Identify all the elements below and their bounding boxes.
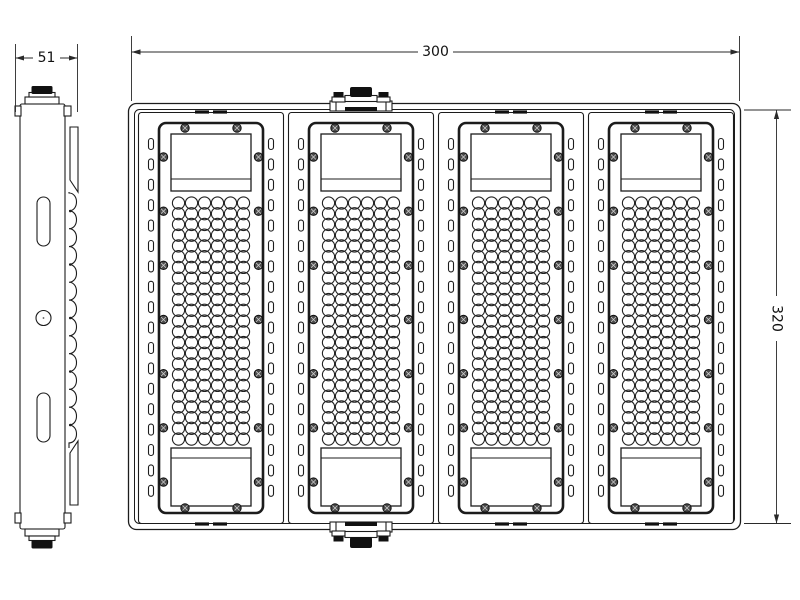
clip-mark [195,110,209,113]
top-panel [621,134,701,191]
screw [554,478,562,486]
vent-slot [269,485,274,496]
vent-slot [419,322,424,333]
screw [459,424,467,432]
side-bottom-gland-rim [29,536,55,541]
vent-slot [149,383,154,394]
vent-slot [569,200,574,211]
side-bracket-bottom [70,441,78,505]
vent-slot [419,220,424,231]
gland-side-cap [334,92,344,98]
vent-slot [719,343,724,354]
vent-slot [149,363,154,374]
screw [404,261,412,269]
vent-slot [299,465,304,476]
screw [704,369,712,377]
screw [481,124,489,132]
vent-slot [149,404,154,415]
bottom-panel [621,448,701,506]
vent-slot [449,220,454,231]
vent-slot [149,424,154,435]
vent-slot [449,200,454,211]
vent-slot [599,383,604,394]
arrowhead-right [731,49,740,54]
vent-slot [719,383,724,394]
vent-slot [149,343,154,354]
vent-slot [449,179,454,190]
screw [159,369,167,377]
gland-side-base [377,531,390,536]
screw [609,369,617,377]
vent-slot [269,200,274,211]
gland-seal-dash [345,522,377,526]
vent-slot [269,281,274,292]
top-panel [471,134,551,191]
bottom-panel [321,448,401,506]
vent-slot [719,241,724,252]
module-2 [289,113,434,524]
screw [554,207,562,215]
vent-slot [599,281,604,292]
screw [159,478,167,486]
screw [459,369,467,377]
vent-slot [569,465,574,476]
vent-slot [719,220,724,231]
side-top-gland-cap [32,86,53,94]
vent-slot [419,200,424,211]
vent-slot [299,485,304,496]
vent-slot [449,485,454,496]
screw [609,207,617,215]
side-mounting-slot-top [37,197,50,246]
screw [254,315,262,323]
vent-slot [449,383,454,394]
screw [309,369,317,377]
screw [459,153,467,161]
vent-slot [599,241,604,252]
vent-slot [569,445,574,456]
vent-slot [419,404,424,415]
module-1 [139,110,284,525]
vent-slot [149,302,154,313]
vent-slot [719,139,724,150]
vent-slot [599,485,604,496]
vent-slot [299,200,304,211]
screw [181,124,189,132]
vent-slot [419,139,424,150]
vent-slot [569,261,574,272]
vent-slot [149,220,154,231]
vent-slot [599,322,604,333]
vent-slot [449,139,454,150]
vent-slot [149,241,154,252]
screw [309,424,317,432]
vent-slot [299,322,304,333]
vent-slot [299,261,304,272]
top-panel [321,134,401,191]
screw [704,153,712,161]
vent-slot [569,220,574,231]
vent-slot [269,241,274,252]
vent-slot [569,424,574,435]
vent-slot [269,261,274,272]
gland-side-cap [334,536,344,542]
side-bottom-gland-cap [32,540,53,549]
vent-slot [269,465,274,476]
vent-slot [719,261,724,272]
vent-slot [419,261,424,272]
vent-slot [719,159,724,170]
screw [683,504,691,512]
vent-slot [149,465,154,476]
vent-slot [419,424,424,435]
clip-mark [495,522,509,525]
screw [554,369,562,377]
vent-slot [299,281,304,292]
screw [554,315,562,323]
heatsink-fins [69,192,77,448]
vent-slot [149,200,154,211]
screw [609,424,617,432]
dimension-height: 320 [744,110,791,524]
screw [704,424,712,432]
vent-slot [419,363,424,374]
vent-slot [299,404,304,415]
module-4 [589,110,734,525]
screw [631,124,639,132]
screw [254,369,262,377]
screw [704,315,712,323]
vent-slot [419,302,424,313]
side-bracket-top [70,127,78,192]
screw [459,478,467,486]
clip-mark [213,110,227,113]
screw [683,124,691,132]
clip-mark [645,110,659,113]
screw [309,315,317,323]
vent-slot [269,139,274,150]
screw [159,424,167,432]
vent-slot [299,220,304,231]
module-3 [439,110,584,525]
fin-dot [69,317,72,320]
vent-slot [599,343,604,354]
vent-slot [269,159,274,170]
front-top-cable-gland [330,87,392,111]
vent-slot [269,343,274,354]
vent-slot [599,139,604,150]
gland-center-base [345,532,377,538]
vent-slot [419,485,424,496]
clip-mark [213,522,227,525]
vent-slot [569,343,574,354]
vent-slot [569,485,574,496]
gland-side-base [332,97,345,102]
side-bottom-tab-left [15,513,21,523]
screw [704,261,712,269]
vent-slot [449,363,454,374]
vent-slot [599,159,604,170]
side-top-tab-right [64,106,71,116]
gland-side-cap [379,92,389,98]
vent-slot [719,302,724,313]
vent-slot [719,363,724,374]
screw [233,504,241,512]
screw [404,207,412,215]
vent-slot [299,302,304,313]
top-panel [171,134,251,191]
vent-slot [269,322,274,333]
screw [404,369,412,377]
screw [404,478,412,486]
vent-slot [719,179,724,190]
clip-mark [495,110,509,113]
side-view [15,86,78,549]
vent-slot [419,159,424,170]
screw [254,261,262,269]
screw [233,124,241,132]
vent-slot [449,159,454,170]
arrowhead-left [16,56,25,61]
clip-mark [663,522,677,525]
bottom-panel [471,448,551,506]
technical-drawing: 300 51 320 [0,0,800,600]
vent-slot [149,485,154,496]
vent-slot [149,281,154,292]
screw [383,504,391,512]
vent-slot [569,241,574,252]
arrowhead-right [69,56,78,61]
vent-slot [449,322,454,333]
vent-slot [149,179,154,190]
gland-side-base [332,531,345,536]
screw [533,504,541,512]
dimension-width: 300 [132,36,740,101]
clip-mark [195,522,209,525]
vent-slot [299,383,304,394]
screw [254,478,262,486]
clip-mark [513,110,527,113]
screw [309,478,317,486]
screw [159,207,167,215]
screw [459,261,467,269]
vent-slot [569,281,574,292]
vent-slot [569,159,574,170]
screw [331,504,339,512]
screw [159,261,167,269]
vent-slot [569,302,574,313]
vent-slot [599,445,604,456]
clip-mark [645,522,659,525]
side-bottom-tab-right [64,513,71,523]
vent-slot [149,261,154,272]
vent-slot [569,322,574,333]
screw [704,478,712,486]
screw [404,424,412,432]
vent-slot [449,465,454,476]
vent-slot [269,179,274,190]
vent-slot [599,404,604,415]
fin-dot [69,263,72,266]
screw [309,261,317,269]
arrowhead-left [132,49,141,54]
vent-slot [299,445,304,456]
screw [459,207,467,215]
vent-slot [299,363,304,374]
vent-slot [719,322,724,333]
screw [404,315,412,323]
screw [383,124,391,132]
vent-slot [149,139,154,150]
vent-slot [719,485,724,496]
vent-slot [149,159,154,170]
vent-slot [569,139,574,150]
clip-mark [513,522,527,525]
vent-slot [299,343,304,354]
screw [459,315,467,323]
front-view [129,87,741,548]
vent-slot [269,404,274,415]
dimension-depth-label: 51 [38,50,56,66]
arrowhead-bottom [774,515,779,524]
vent-slot [299,179,304,190]
vent-slot [569,383,574,394]
front-bottom-cable-gland [330,522,392,548]
fin-dot [69,210,72,213]
vent-slot [419,445,424,456]
vent-slot [599,363,604,374]
gland-side-base [377,97,390,102]
gland-center-cap [350,537,372,548]
vent-slot [269,220,274,231]
clip-mark [663,110,677,113]
screw [609,153,617,161]
vent-slot [599,220,604,231]
gland-side-cap [379,536,389,542]
vent-slot [449,241,454,252]
vent-slot [599,424,604,435]
vent-slot [419,241,424,252]
vent-slot [269,383,274,394]
vent-slot [419,465,424,476]
vent-slot [449,404,454,415]
bottom-panel [171,448,251,506]
vent-slot [269,302,274,313]
screw [533,124,541,132]
vent-slot [299,241,304,252]
vent-slot [569,363,574,374]
screw [609,315,617,323]
screw [309,207,317,215]
vent-slot [719,281,724,292]
vent-slot [269,445,274,456]
vent-slot [419,179,424,190]
screw [631,504,639,512]
vent-slot [449,302,454,313]
drawing-svg: 300 51 320 [0,0,800,600]
vent-slot [299,159,304,170]
vent-slot [449,445,454,456]
screw [159,315,167,323]
side-bottom-gland-plate [25,529,59,536]
vent-slot [149,322,154,333]
arrowhead-top [774,110,779,119]
vent-slot [599,465,604,476]
vent-slot [719,465,724,476]
vent-slot [599,179,604,190]
screw [181,504,189,512]
screw [704,207,712,215]
vent-slot [419,343,424,354]
gland-center-cap [350,87,372,97]
vent-slot [299,424,304,435]
screw [481,504,489,512]
vent-slot [719,404,724,415]
screw [159,153,167,161]
vent-slot [299,139,304,150]
vent-slot [449,261,454,272]
vent-slot [569,179,574,190]
vent-slot [269,363,274,374]
screw [254,424,262,432]
screw [254,153,262,161]
screw [554,153,562,161]
screw [554,261,562,269]
screw [254,207,262,215]
vent-slot [569,404,574,415]
screw [609,478,617,486]
dimension-width-label: 300 [422,44,449,60]
vent-slot [599,302,604,313]
vent-slot [719,200,724,211]
vent-slot [449,343,454,354]
vent-slot [419,383,424,394]
screw [609,261,617,269]
side-mounting-hole-center [43,317,45,319]
vent-slot [269,424,274,435]
screw [331,124,339,132]
screw [554,424,562,432]
gland-seal-dash [345,107,377,111]
vent-slot [719,424,724,435]
vent-slot [149,445,154,456]
dimension-height-label: 320 [769,305,785,332]
vent-slot [449,424,454,435]
vent-slot [419,281,424,292]
vent-slot [599,200,604,211]
fin-dot [69,370,72,373]
screw [309,153,317,161]
side-mounting-slot-bottom [37,393,50,442]
side-top-gland-plate [25,97,59,104]
vent-slot [449,281,454,292]
screw [404,153,412,161]
vent-slot [719,445,724,456]
vent-slot [599,261,604,272]
fin-dot [69,424,72,427]
